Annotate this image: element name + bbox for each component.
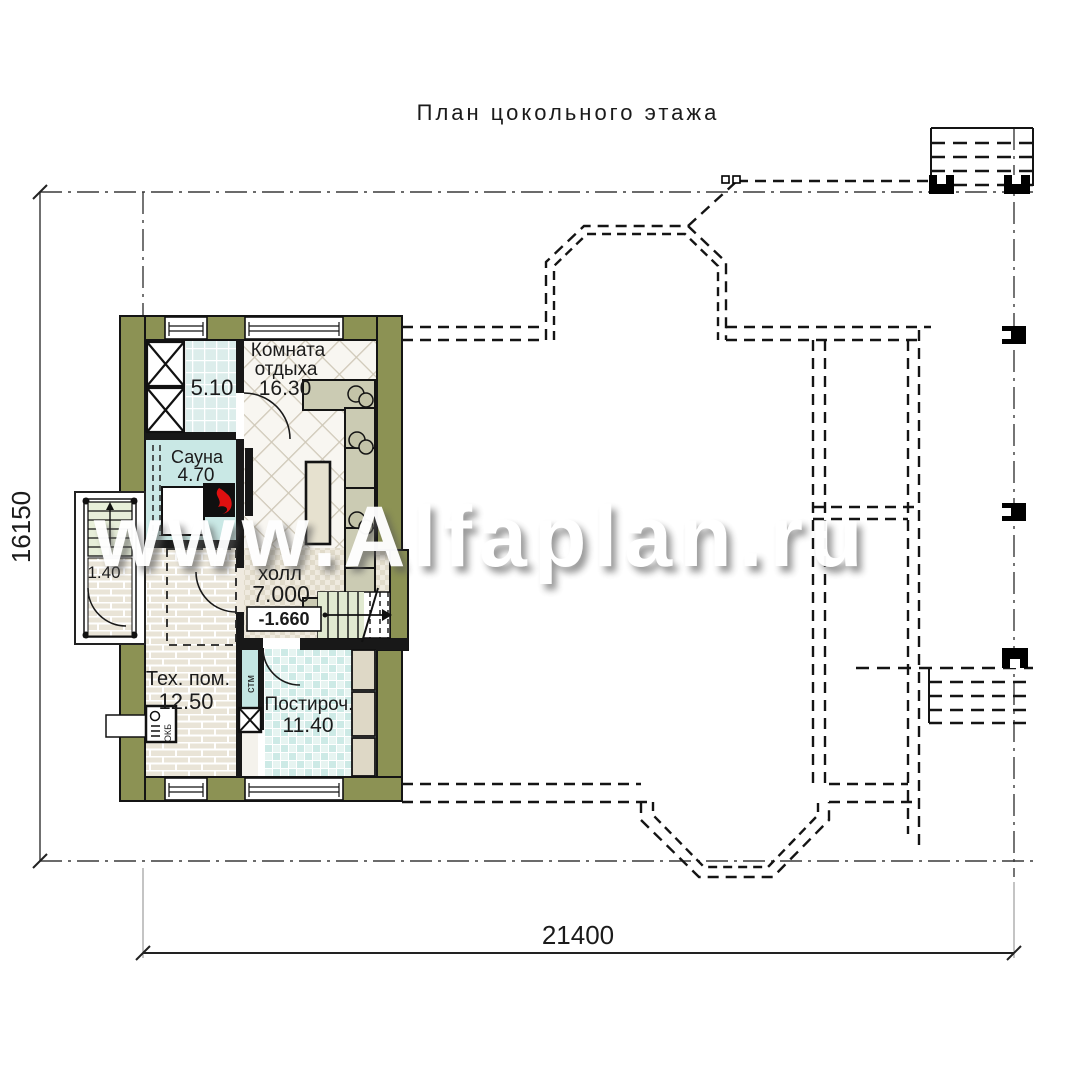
lounge-area-label: 16.30 [259, 377, 312, 400]
laundry-cabinets [352, 650, 375, 776]
terrace-stair-top [722, 128, 1033, 194]
lounge-name-line1: Комната [251, 340, 326, 361]
floor-plan-page: План цокольного этажа [0, 0, 1080, 1080]
boiler-label: ОКБ [163, 724, 173, 742]
dimension-bottom-value: 21400 [542, 920, 614, 950]
washing-machine-label: стм [245, 675, 257, 693]
laundry-area-label: 11.40 [283, 714, 334, 737]
window-icon [245, 778, 343, 800]
window-icon [165, 317, 207, 339]
page-title: План цокольного этажа [28, 100, 1080, 126]
window-icon [245, 317, 343, 339]
tech-name-label: Тех. пом. [146, 668, 230, 690]
storage-area-label: 5.10 [191, 375, 234, 400]
window-icon [165, 778, 207, 800]
sauna-name-label: Сауна [171, 447, 224, 467]
sauna-area-label: 4.70 [178, 465, 215, 486]
dimension-left-value: 16150 [6, 491, 36, 563]
laundry-name-label: Постироч. [265, 694, 354, 715]
dimension-left: 16150 [6, 185, 47, 868]
internal-stair [318, 588, 392, 642]
tech-area-label: 12.50 [158, 689, 213, 714]
terrace-stair-right [856, 648, 1033, 723]
ventilation-shafts [147, 342, 184, 432]
washing-machine-icon [239, 708, 261, 732]
dimension-bottom: 21400 [136, 868, 1021, 960]
watermark: www.Alfaplan.ru [94, 488, 870, 587]
hall-level-value: -1.660 [258, 609, 309, 629]
